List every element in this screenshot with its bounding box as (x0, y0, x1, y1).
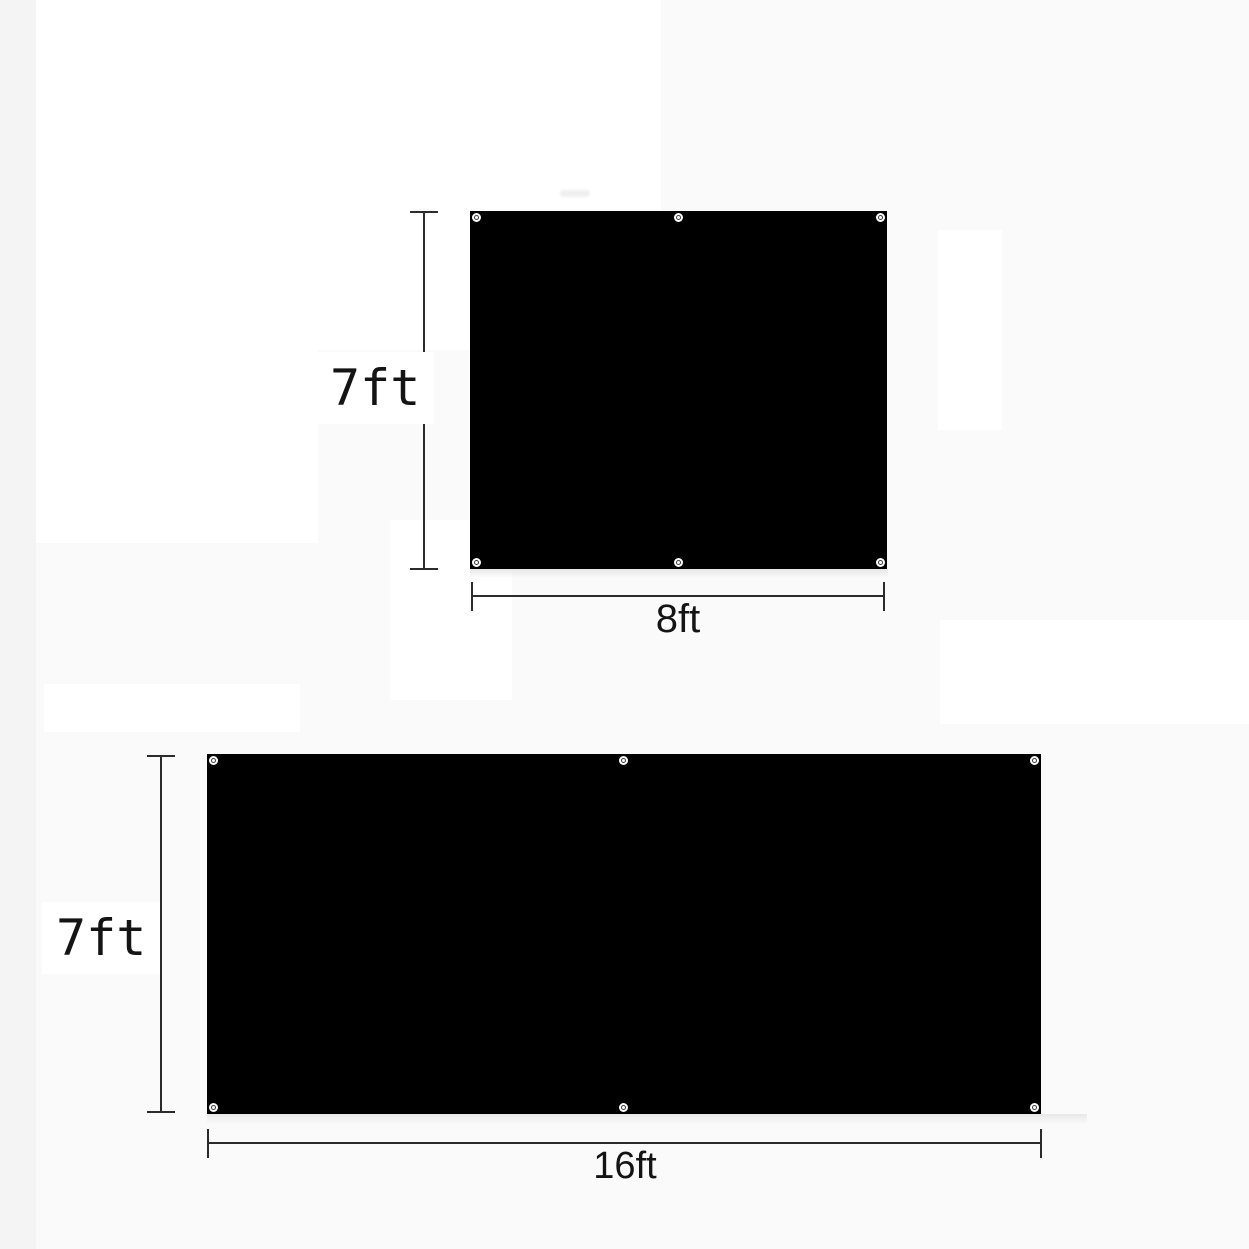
width-dimension-arrow (207, 1142, 1042, 1144)
scan-artifact (560, 190, 590, 197)
grommet-icon (674, 213, 683, 222)
grommet-icon (1030, 1103, 1039, 1112)
grommet-icon (209, 756, 218, 765)
tarp-panel-7x16 (207, 754, 1041, 1114)
height-label: 7ft (42, 902, 160, 974)
grommet-icon (619, 1103, 628, 1112)
tarp-panel-7x8 (470, 211, 887, 569)
background-patch (938, 230, 1002, 430)
width-label: 16ft (207, 1147, 1043, 1185)
width-label: 8ft (471, 599, 885, 639)
grommet-icon (209, 1103, 218, 1112)
panel-shadow (470, 569, 888, 578)
background-patch (44, 684, 300, 732)
grommet-icon (876, 213, 885, 222)
background-patch (36, 350, 318, 543)
grommet-icon (1030, 756, 1039, 765)
height-label: 7ft (316, 352, 434, 424)
panel-shadow (207, 1114, 1087, 1124)
grommet-icon (472, 213, 481, 222)
background-patch (940, 620, 1249, 724)
grommet-icon (619, 756, 628, 765)
background-patch (0, 0, 36, 1249)
product-dimension-image: 7ft 8ft 7ft 16ft (0, 0, 1249, 1249)
grommet-icon (472, 558, 481, 567)
grommet-icon (674, 558, 683, 567)
grommet-icon (876, 558, 885, 567)
